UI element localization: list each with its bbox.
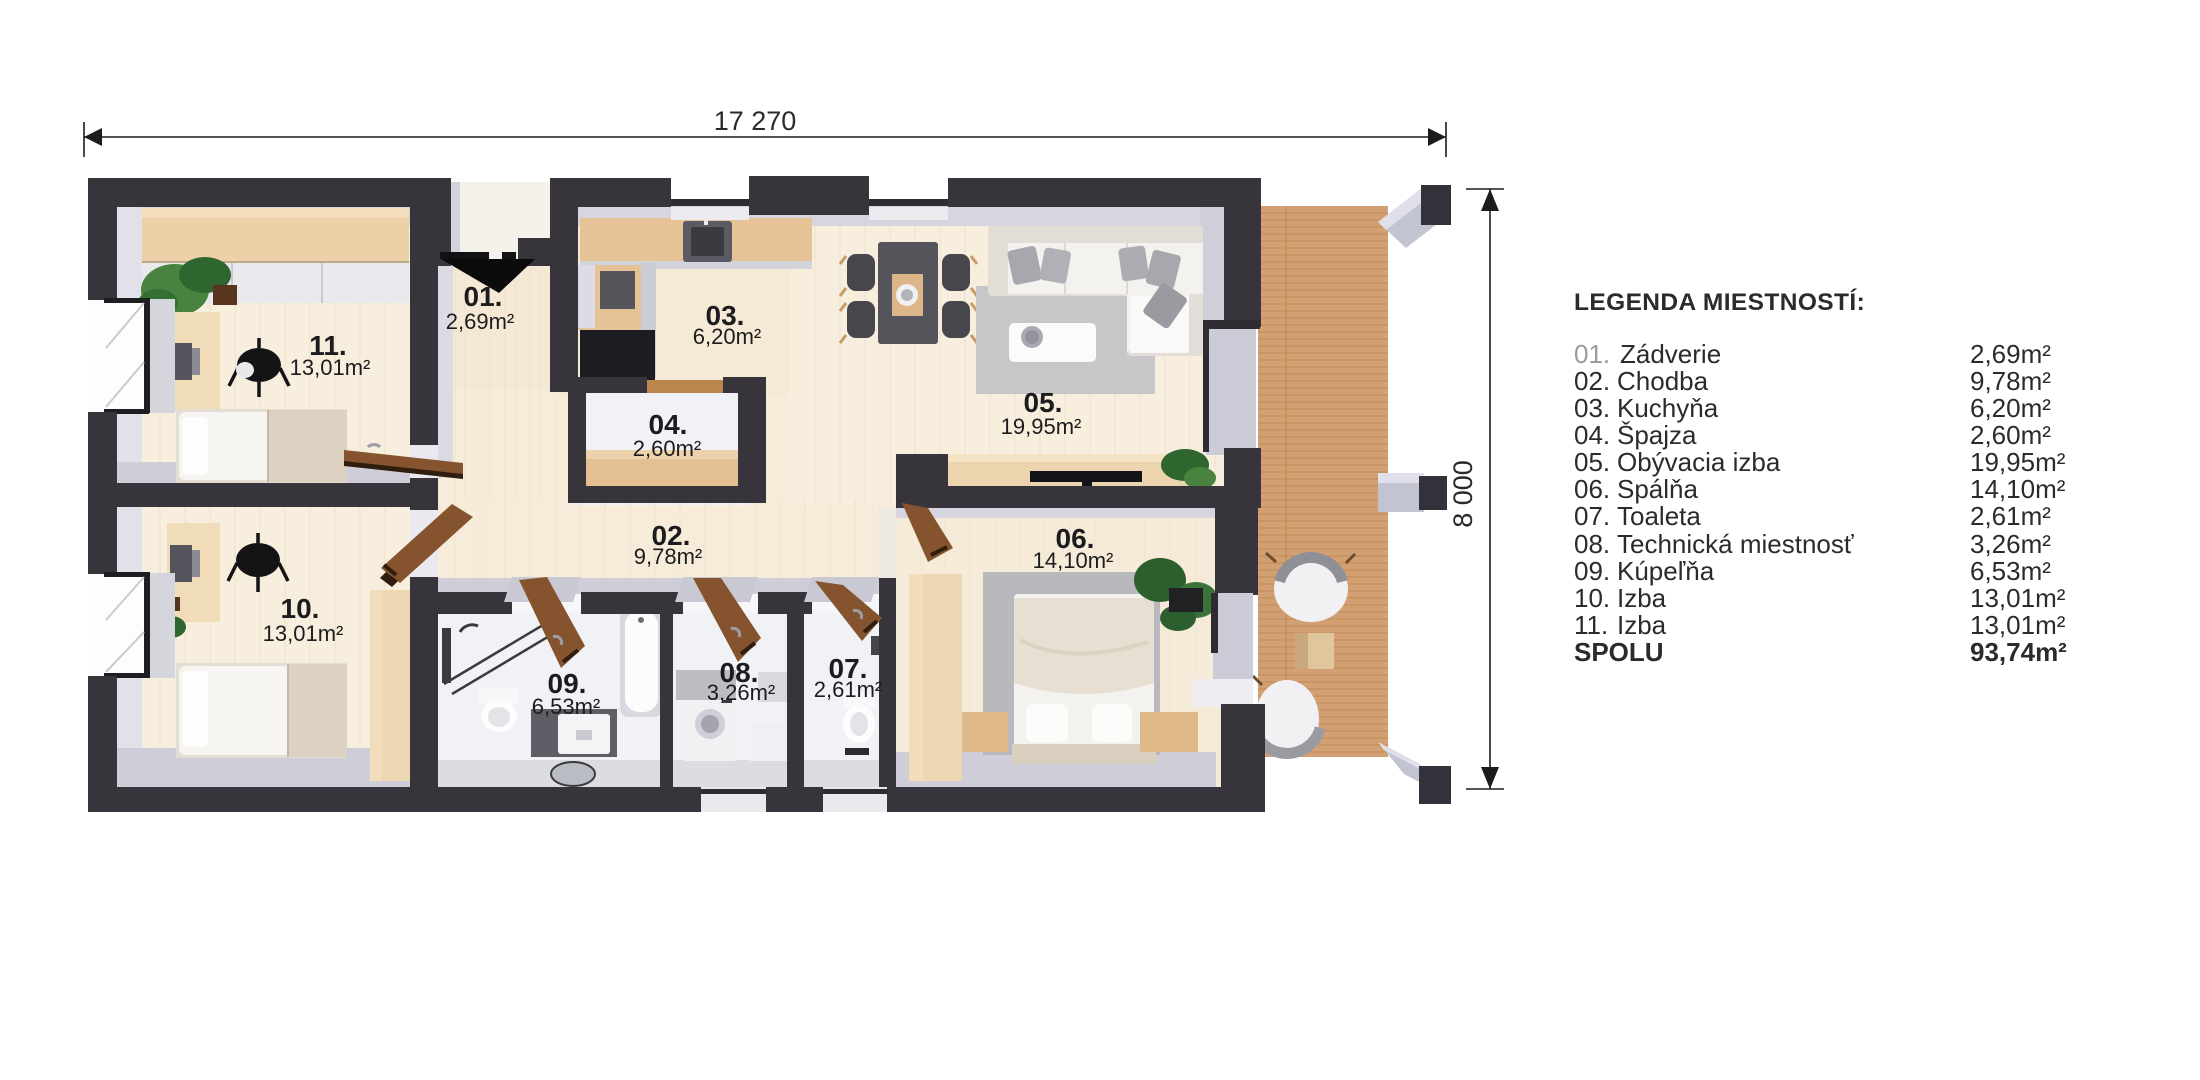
svg-text:10.: 10.: [1574, 583, 1610, 613]
svg-text:Špajza: Špajza: [1617, 420, 1697, 450]
svg-text:13,01m²: 13,01m²: [1970, 583, 2066, 613]
svg-text:19,95m²: 19,95m²: [1970, 447, 2066, 477]
svg-text:13,01m²: 13,01m²: [1970, 610, 2066, 640]
svg-text:06.: 06.: [1574, 474, 1610, 504]
svg-text:08.: 08.: [1574, 529, 1610, 559]
svg-text:2,61m²: 2,61m²: [1970, 501, 2051, 531]
svg-text:93,74m²: 93,74m²: [1970, 637, 2067, 667]
svg-text:17 270: 17 270: [714, 106, 797, 136]
svg-text:Toaleta: Toaleta: [1617, 501, 1701, 531]
svg-text:Zádverie: Zádverie: [1620, 339, 1721, 369]
svg-text:Kúpeľňa: Kúpeľňa: [1617, 556, 1715, 586]
svg-text:SPOLU: SPOLU: [1574, 637, 1664, 667]
svg-text:2,60m²: 2,60m²: [633, 436, 701, 461]
svg-text:3,26m²: 3,26m²: [707, 680, 775, 705]
svg-text:Spálňa: Spálňa: [1617, 474, 1698, 504]
svg-text:01.: 01.: [1574, 339, 1610, 369]
svg-text:Izba: Izba: [1617, 610, 1667, 640]
svg-text:13,01m²: 13,01m²: [290, 355, 371, 380]
svg-text:6,53m²: 6,53m²: [532, 694, 600, 719]
svg-text:Technická miestnosť: Technická miestnosť: [1617, 529, 1854, 559]
svg-text:LEGENDA MIESTNOSTÍ:: LEGENDA MIESTNOSTÍ:: [1574, 288, 1865, 316]
svg-text:10.: 10.: [281, 593, 320, 624]
svg-text:13,01m²: 13,01m²: [263, 621, 344, 646]
svg-text:09.: 09.: [1574, 556, 1610, 586]
svg-text:19,95m²: 19,95m²: [1001, 414, 1082, 439]
svg-text:Chodba: Chodba: [1617, 366, 1709, 396]
svg-text:Kuchyňa: Kuchyňa: [1617, 393, 1719, 423]
svg-text:14,10m²: 14,10m²: [1033, 548, 1114, 573]
svg-text:Obývacia izba: Obývacia izba: [1617, 447, 1781, 477]
svg-text:02.: 02.: [1574, 366, 1610, 396]
svg-text:2,60m²: 2,60m²: [1970, 420, 2051, 450]
svg-text:03.: 03.: [1574, 393, 1610, 423]
svg-text:2,61m²: 2,61m²: [814, 677, 882, 702]
svg-text:11.: 11.: [1574, 610, 1608, 640]
svg-text:2,69m²: 2,69m²: [446, 309, 514, 334]
svg-text:04.: 04.: [1574, 420, 1610, 450]
svg-text:9,78m²: 9,78m²: [1970, 366, 2051, 396]
svg-text:07.: 07.: [1574, 501, 1610, 531]
svg-text:6,20m²: 6,20m²: [693, 324, 761, 349]
svg-text:8 000: 8 000: [1448, 460, 1478, 528]
svg-text:Izba: Izba: [1617, 583, 1667, 613]
svg-text:3,26m²: 3,26m²: [1970, 529, 2051, 559]
svg-text:14,10m²: 14,10m²: [1970, 474, 2066, 504]
svg-text:6,53m²: 6,53m²: [1970, 556, 2051, 586]
svg-text:2,69m²: 2,69m²: [1970, 339, 2051, 369]
svg-text:6,20m²: 6,20m²: [1970, 393, 2051, 423]
svg-text:01.: 01.: [464, 281, 503, 312]
svg-text:05.: 05.: [1574, 447, 1610, 477]
svg-text:9,78m²: 9,78m²: [634, 544, 702, 569]
